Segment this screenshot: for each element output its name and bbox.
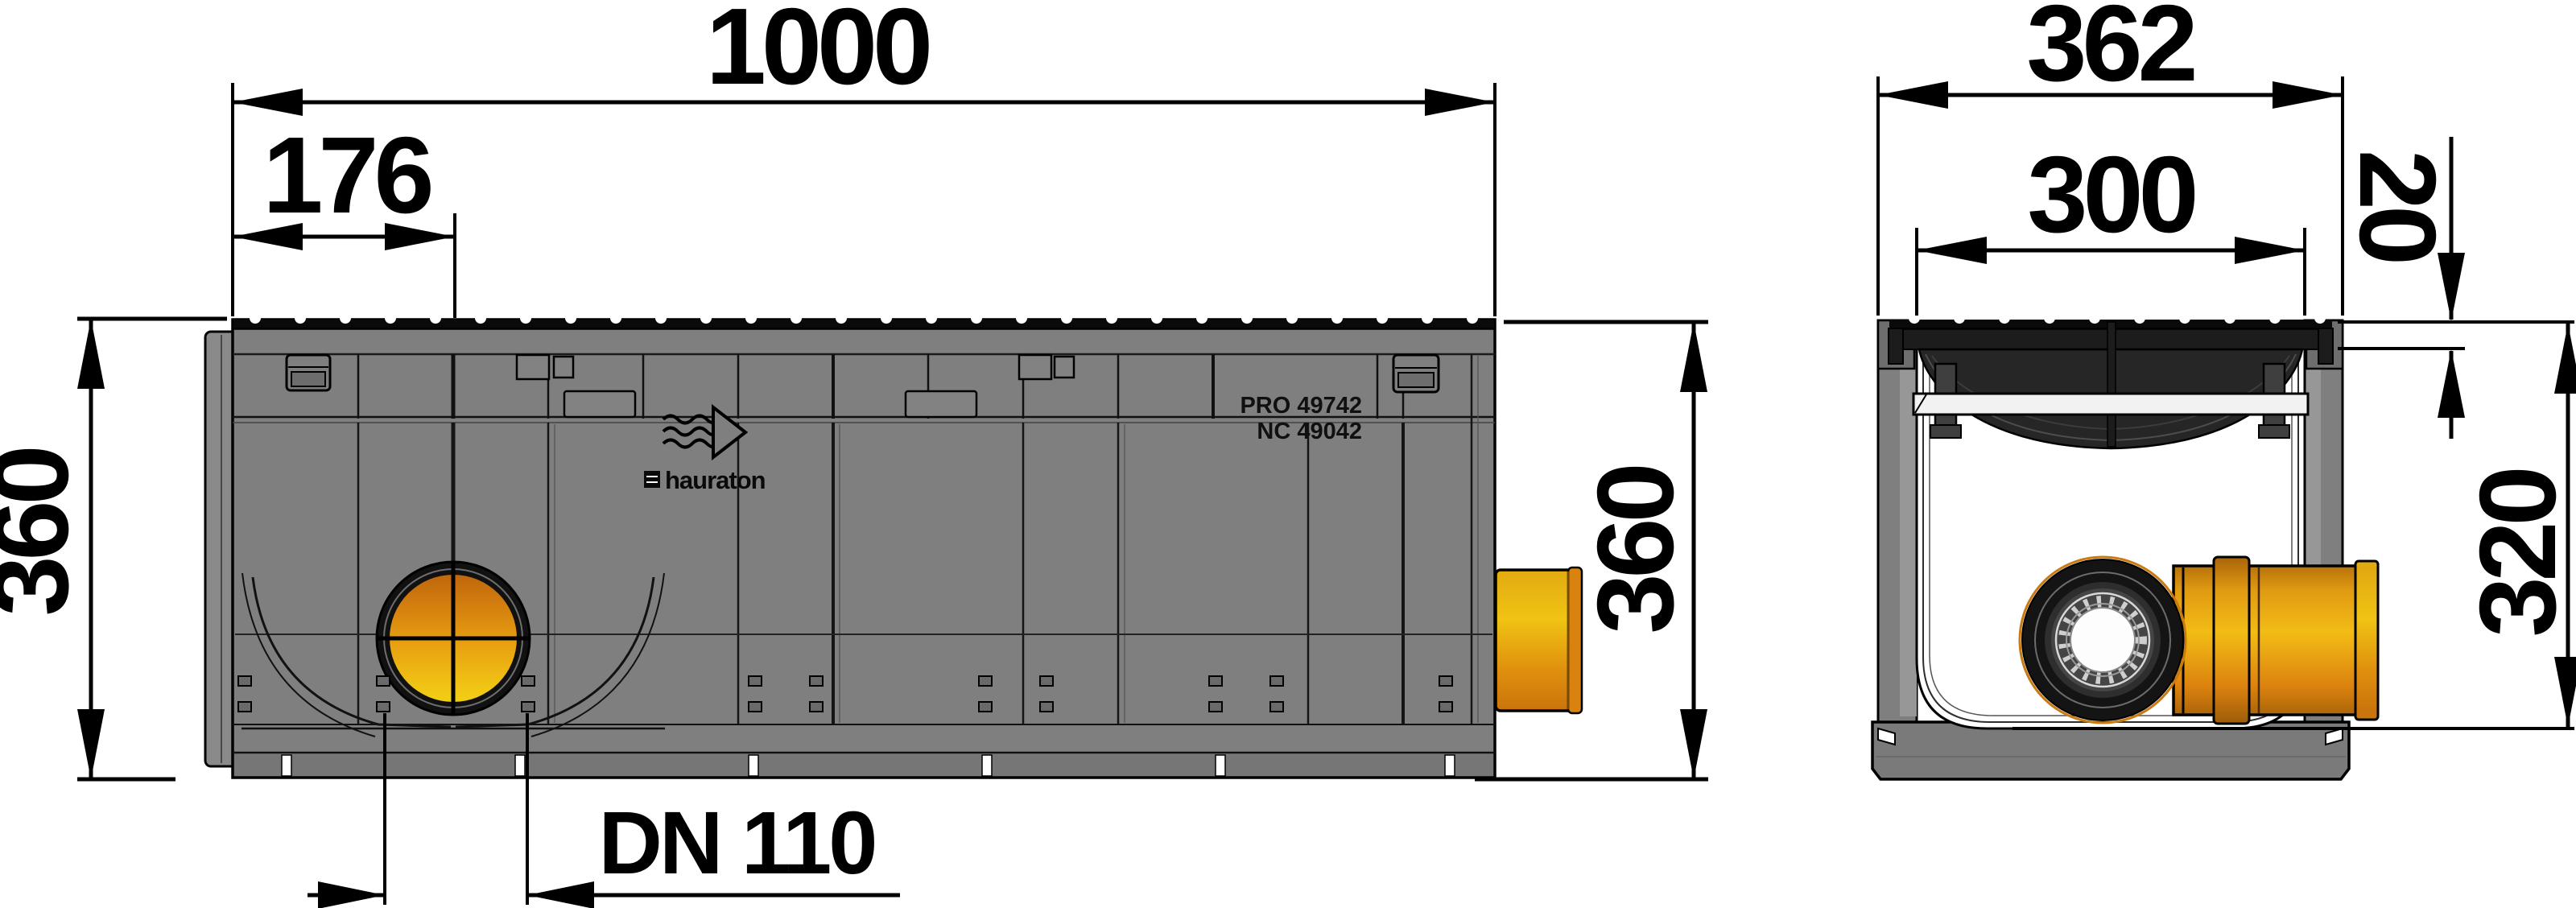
dim-label-360-right: 360	[1575, 466, 1696, 634]
marking-line1: PRO 49742	[1240, 393, 1362, 419]
dim-label-176: 176	[262, 114, 431, 236]
outlet-circle	[377, 562, 530, 715]
dim-label-20: 20	[2337, 150, 2458, 262]
dim-label-360-left: 360	[0, 448, 91, 616]
marking-line2: NC 49042	[1257, 419, 1362, 444]
pipe-socket-ring	[2020, 557, 2186, 723]
grate-edge-serration	[233, 314, 1494, 328]
outlet-stub-side	[1496, 567, 1582, 713]
dim-label-1000: 1000	[706, 0, 929, 107]
dim-label-320: 320	[2457, 469, 2576, 637]
section-base	[1872, 722, 2349, 779]
brand-logo-mark-icon	[644, 471, 660, 488]
dimension-height-left-360: 360	[0, 319, 227, 779]
side-view: hauraton PRO 49742 NC 49042	[205, 314, 1582, 778]
brand-text: hauraton	[665, 466, 766, 494]
dim-label-300: 300	[2027, 134, 2194, 255]
dimension-offset-176: 176	[233, 114, 455, 318]
pipe-collar	[2214, 557, 2249, 724]
dim-label-362: 362	[2026, 0, 2194, 104]
outlet-pipe	[2173, 557, 2378, 724]
cross-section-view	[1872, 314, 2378, 779]
dimension-clear-width-300: 300	[1917, 134, 2305, 316]
dimension-grate-20: 20	[2337, 137, 2574, 439]
dim-label-dn110: DN 110	[599, 794, 875, 893]
frame-bar	[1913, 394, 2308, 415]
technical-drawing-canvas: hauraton PRO 49742 NC 49042	[0, 0, 2576, 908]
pipe-end-cap	[2355, 561, 2378, 720]
